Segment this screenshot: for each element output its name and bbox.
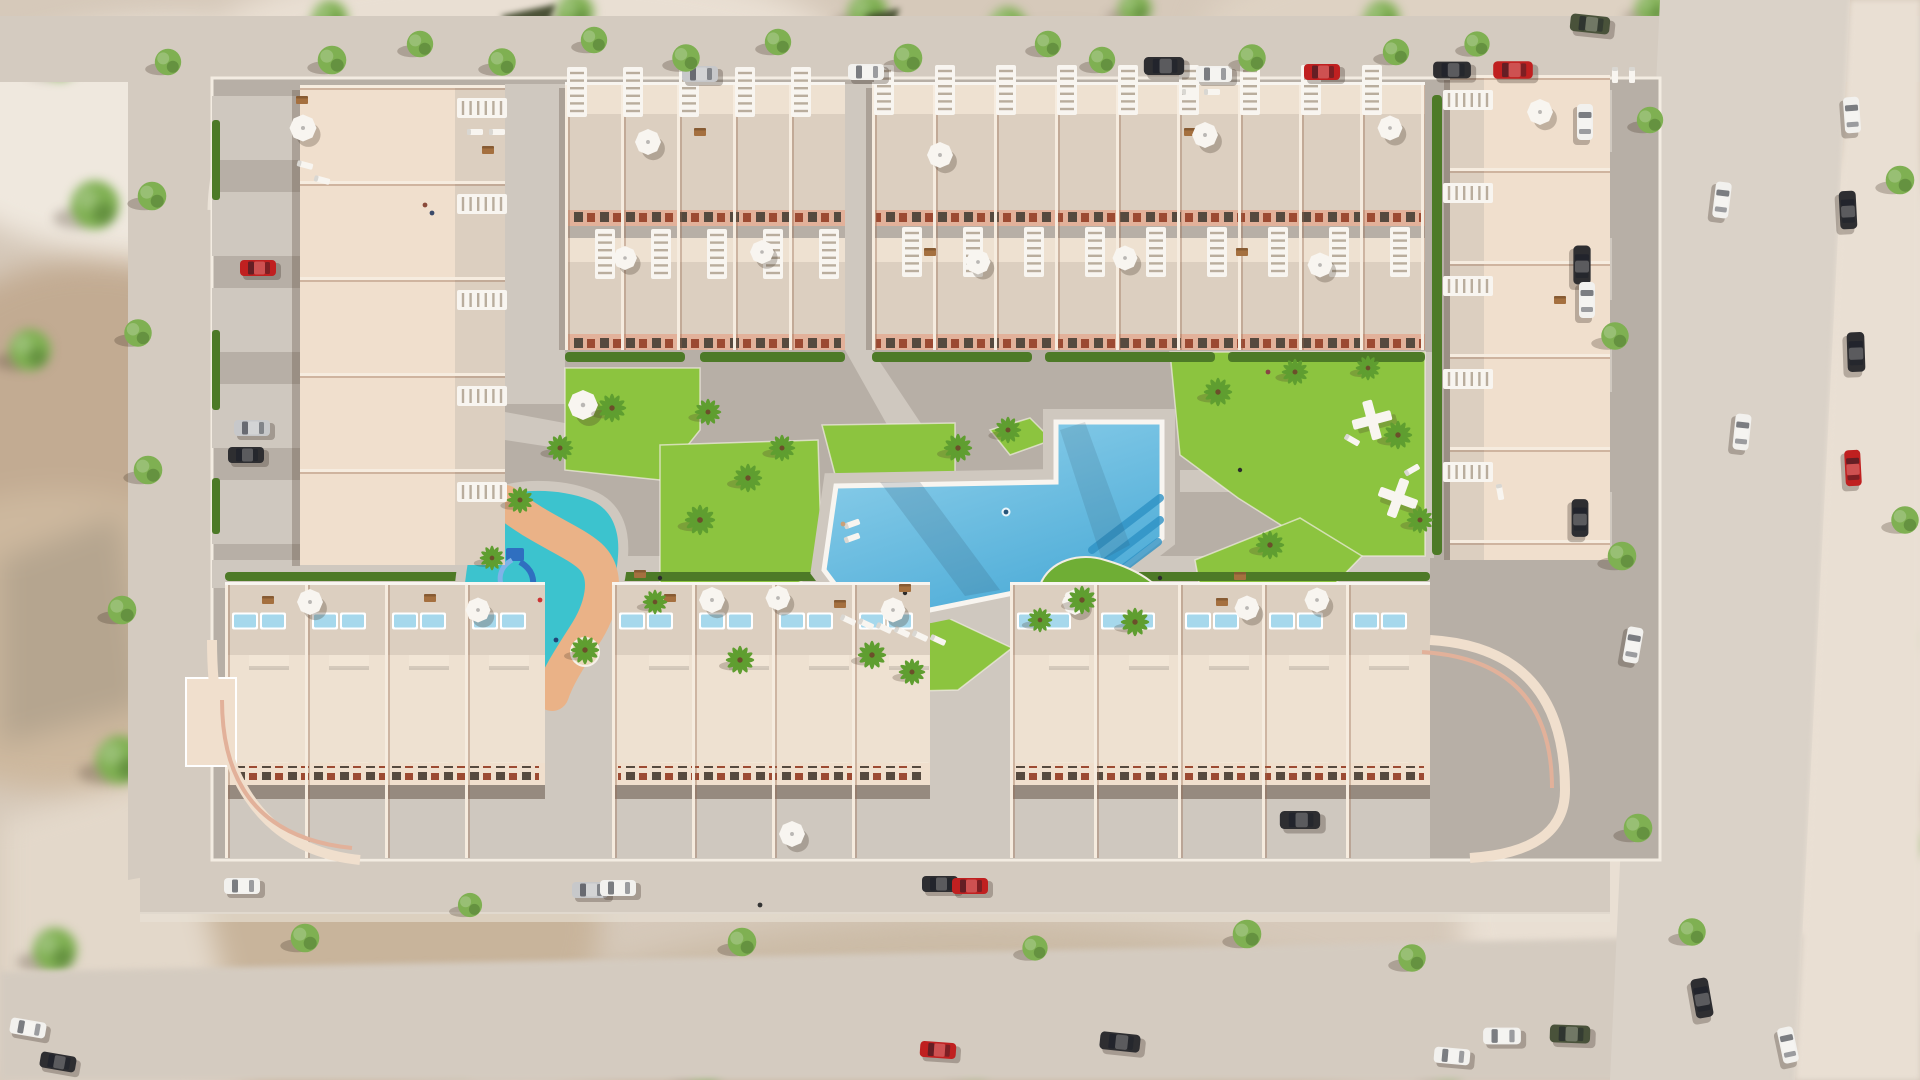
rooftop-stair-railing [1443,90,1493,110]
parked-car-red [1304,64,1345,84]
sun-lounger [1204,89,1220,95]
parked-car-white [1575,282,1595,323]
rooftop-stair-railing [1443,462,1493,482]
rooftop-stair-railing [1207,227,1227,277]
rooftop-stair-railing [1268,227,1288,277]
parked-car-white [1483,1028,1526,1049]
person [841,522,846,527]
outdoor-furniture [634,570,646,578]
outdoor-furniture [482,146,494,154]
west-paseo [505,84,565,404]
rooftop-stair-railing [651,229,671,279]
rooftop-stair-railing [996,65,1016,115]
sun-lounger [1629,67,1635,83]
rooftop-stair-railing [1362,65,1382,115]
render-canvas: Aerial 3D architectural render of a wall… [0,0,1920,1080]
parked-car-black [1842,332,1866,378]
rooftop-stair-railing [1443,369,1493,389]
rooftop-plunge-pool [340,613,366,630]
parked-car-green [1549,1024,1596,1048]
rooftop-stair-railing [1146,227,1166,277]
sun-lounger [489,129,505,135]
outdoor-furniture [1216,598,1228,606]
rooftop-plunge-pool [1353,613,1379,630]
outdoor-furniture [694,128,706,136]
rooftop-stair-railing [595,229,615,279]
person [1266,370,1271,375]
rooftop-stair-railing [457,98,507,118]
rooftop-stair-railing [791,67,811,117]
rooftop-plunge-pool [260,613,286,630]
rooftop-stair-railing [457,386,507,406]
rooftop-plunge-pool [1381,613,1407,630]
outdoor-furniture [924,248,936,256]
rooftop-plunge-pool [727,613,753,630]
parked-car-red [240,260,281,280]
outdoor-furniture [424,594,436,602]
rooftop-stair-railing [623,67,643,117]
rooftop-stair-railing [819,229,839,279]
rooftop-stair-railing [1085,227,1105,277]
parked-car-black [1567,499,1588,542]
parked-car-black [1280,811,1326,833]
parked-car-white [1573,104,1593,145]
rooftop-stair-railing [707,229,727,279]
rooftop-plunge-pool [420,613,446,630]
parked-car-red [952,878,993,898]
parked-car-white [600,880,641,900]
person [538,598,543,603]
rooftop-stair-railing [1240,65,1260,115]
rooftop-stair-railing [1024,227,1044,277]
townhouse-block-west [559,82,845,350]
townhouse-block-east [866,82,1425,350]
person [554,638,559,643]
outdoor-furniture [1236,248,1248,256]
parked-car-black [1144,57,1190,79]
sun-lounger [1612,67,1618,83]
rooftop-plunge-pool [647,613,673,630]
rooftop-plunge-pool [807,613,833,630]
rooftop-stair-railing [735,67,755,117]
parked-car-white [1839,96,1862,138]
parked-car-red [1493,61,1538,83]
parked-car-red [1840,450,1862,492]
rooftop-stair-railing [1057,65,1077,115]
east-paseo-hedge [1432,95,1442,555]
parked-car-white [848,64,889,84]
parked-car-black [1433,62,1476,83]
person [1004,510,1009,515]
parked-car-black [228,447,269,467]
rooftop-stair-railing [1118,65,1138,115]
person [423,203,428,208]
rooftop-plunge-pool [1213,613,1239,630]
parked-car-white [1196,66,1237,86]
rooftop-stair-railing [1443,183,1493,203]
aerial-render: Aerial 3D architectural render of a wall… [0,0,1920,1080]
outdoor-furniture [296,96,308,104]
rooftop-plunge-pool [1185,613,1211,630]
outdoor-furniture [262,596,274,604]
parked-car-silver [234,420,275,440]
outdoor-furniture [1554,296,1566,304]
rooftop-plunge-pool [500,613,526,630]
outdoor-furniture [834,600,846,608]
rooftop-plunge-pool [1269,613,1295,630]
rooftop-stair-railing [567,67,587,117]
rooftop-stair-railing [902,227,922,277]
outdoor-furniture [1234,572,1246,580]
rooftop-stair-railing [457,194,507,214]
parked-car-white [224,878,265,898]
outdoor-furniture [899,584,911,592]
sun-lounger [467,129,483,135]
person [758,903,763,908]
rooftop-stair-railing [935,65,955,115]
person [430,211,435,216]
south-street [140,858,1610,914]
rooftop-stair-railing [1390,227,1410,277]
rooftop-stair-railing [1443,276,1493,296]
rooftop-plunge-pools [232,613,1407,630]
rooftop-plunge-pool [619,613,645,630]
rooftop-plunge-pool [232,613,258,630]
rooftop-stair-railing [457,482,507,502]
rooftop-plunge-pool [392,613,418,630]
parked-car-black [1834,191,1857,236]
rooftop-stair-railing [457,290,507,310]
sun-lounger [1182,89,1198,95]
